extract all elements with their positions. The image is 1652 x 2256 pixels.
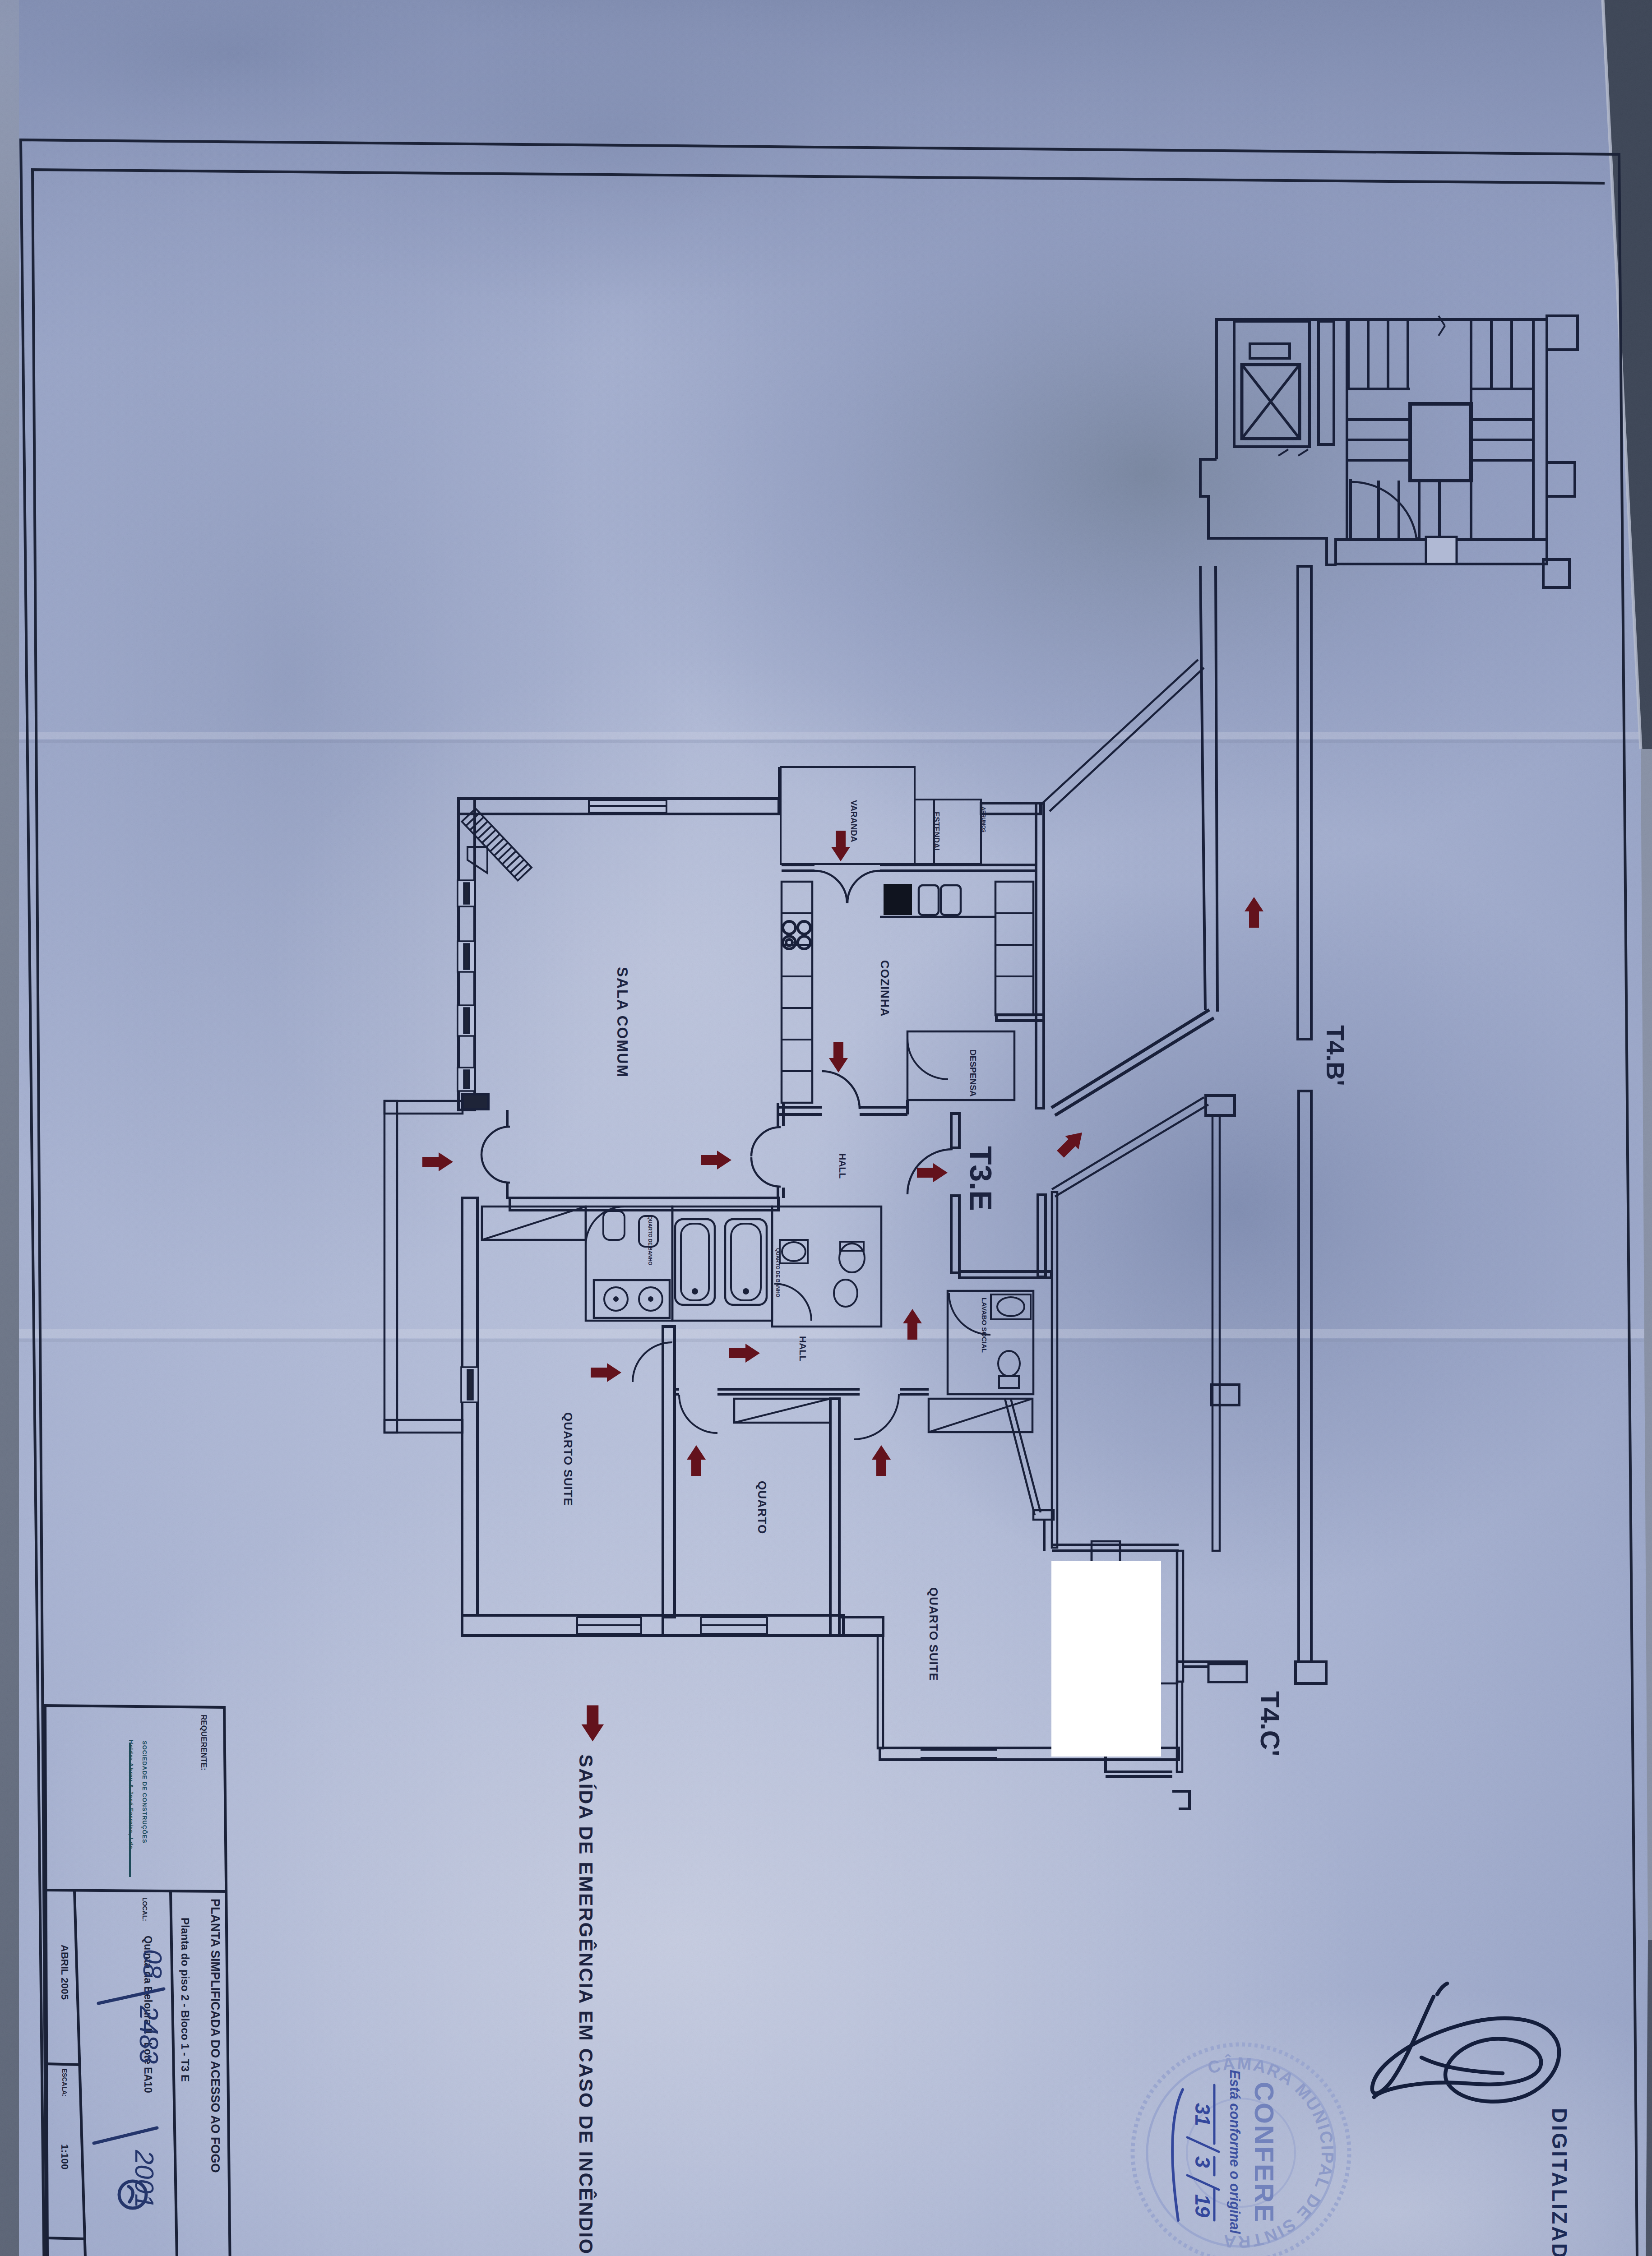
svg-text:HALL: HALL — [798, 1336, 808, 1361]
svg-text:T3.E: T3.E — [964, 1146, 998, 1211]
svg-text:LAVABO SOCIAL: LAVABO SOCIAL — [981, 1298, 988, 1353]
svg-text:3: 3 — [1191, 2156, 1214, 2168]
svg-text:QUARTO: QUARTO — [755, 1481, 769, 1534]
svg-text:Está conforme o original: Está conforme o original — [1227, 2070, 1243, 2234]
svg-text:1:100: 1:100 — [59, 2144, 70, 2169]
svg-text:QUARTO DE BANHO: QUARTO DE BANHO — [648, 1216, 653, 1266]
svg-text:08: 08 — [138, 1949, 167, 1979]
svg-text:HALL: HALL — [838, 1153, 848, 1179]
svg-text:CONFERE: CONFERE — [1249, 2082, 1279, 2224]
svg-text:SOCIEDADE DE CONSTRUÇÕES: SOCIEDADE DE CONSTRUÇÕES — [141, 1741, 148, 1844]
svg-text:PLANTA SIMPLIFICADA DO ACESSO: PLANTA SIMPLIFICADA DO ACESSO AO FOGO — [208, 1899, 222, 2173]
svg-text:SAÍDA DE EMERGÊNCIA EM CASO DE: SAÍDA DE EMERGÊNCIA EM CASO DE INCÊNDIO — [575, 1754, 597, 2255]
svg-text:ESCALA:: ESCALA: — [61, 2069, 68, 2097]
svg-text:REQUERENTE:: REQUERENTE: — [199, 1715, 208, 1771]
svg-text:QUARTO DE BANHO: QUARTO DE BANHO — [775, 1248, 781, 1298]
svg-text:VARANDA: VARANDA — [849, 800, 859, 842]
svg-text:ARRUMOS: ARRUMOS — [981, 807, 986, 832]
svg-text:LOCAL:: LOCAL: — [141, 1897, 148, 1921]
svg-text:Helder Abreu & José Ferreira,: Helder Abreu & José Ferreira, Lda. — [128, 1740, 134, 1851]
svg-text:31: 31 — [1191, 2103, 1214, 2126]
svg-text:ABRIL 2005: ABRIL 2005 — [59, 1945, 70, 2000]
svg-text:SALA COMUM: SALA COMUM — [614, 967, 631, 1078]
svg-text:ESTENDAL: ESTENDAL — [932, 812, 941, 853]
svg-text:COZINHA: COZINHA — [878, 960, 892, 1017]
svg-text:QUARTO SUITE: QUARTO SUITE — [927, 1587, 940, 1681]
svg-text:DIGITALIZADO: DIGITALIZADO — [1548, 2108, 1571, 2256]
svg-text:DESPENSA: DESPENSA — [968, 1049, 978, 1097]
svg-text:2483: 2483 — [134, 2005, 164, 2064]
svg-text:19: 19 — [1191, 2194, 1214, 2218]
svg-text:T4.C': T4.C' — [1255, 1691, 1285, 1756]
svg-text:QUARTO SUITE: QUARTO SUITE — [561, 1412, 575, 1506]
svg-text:Planta do piso 2 - Bloco 1 - T: Planta do piso 2 - Bloco 1 - T3 E — [179, 1918, 191, 2082]
svg-text:T4.B': T4.B' — [1321, 1025, 1350, 1086]
